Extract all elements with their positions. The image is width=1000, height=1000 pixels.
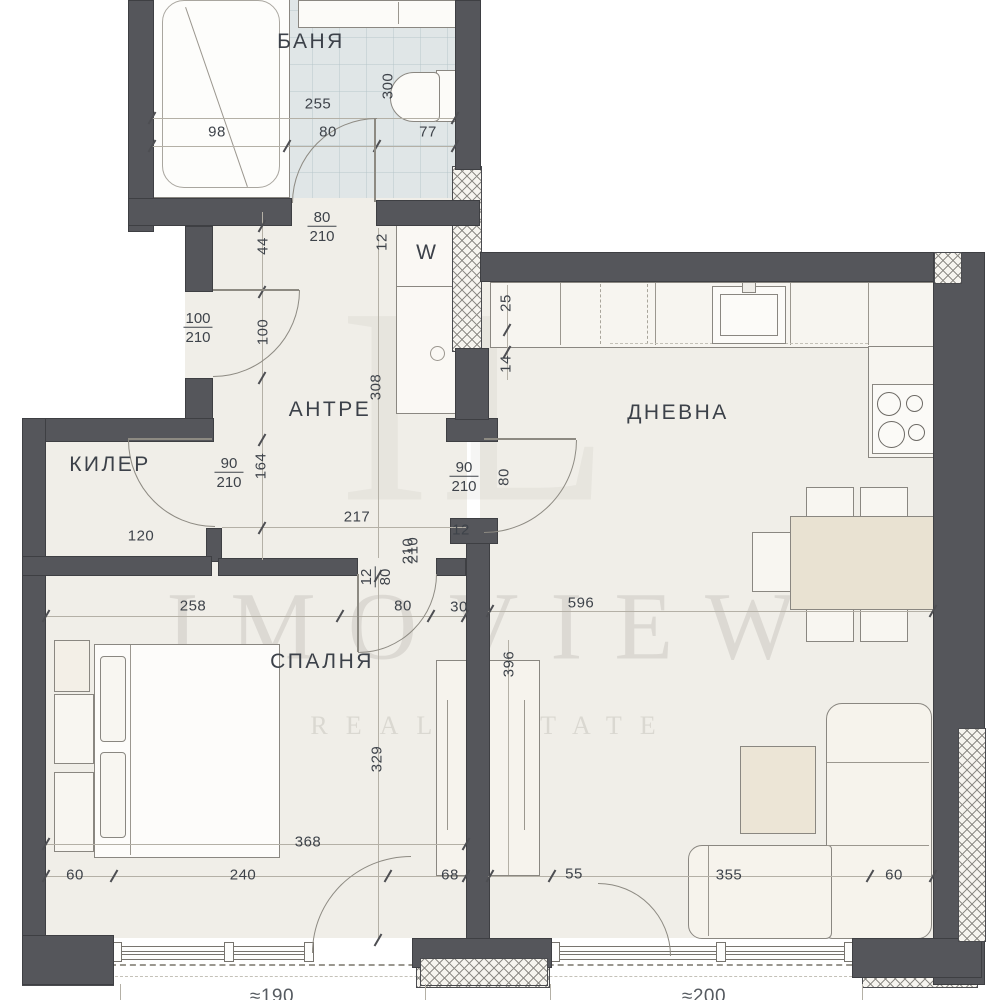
vanity-counter	[298, 0, 458, 28]
toilet-bowl	[390, 72, 440, 122]
dining-chair	[860, 607, 908, 642]
wardrobe-handle	[447, 700, 448, 830]
dim-label: 98	[208, 124, 226, 141]
dim-label: 12	[452, 522, 470, 539]
dim-label: 596	[568, 595, 595, 612]
floor-plan: IL IMOVIEW REAL ESTATE	[0, 0, 1000, 1000]
sofa-seat	[688, 845, 832, 939]
dim-label: 164	[253, 453, 270, 480]
counter-divider	[560, 283, 561, 345]
wall-segment	[480, 252, 935, 282]
dim-guide	[425, 984, 426, 1000]
dim-label: 25	[498, 294, 515, 312]
cooktop-burner	[877, 392, 901, 416]
sofa-cushion-line	[827, 845, 929, 846]
room-label-closet: КИЛЕР	[69, 453, 151, 477]
upper-cabinet-dash	[647, 284, 648, 344]
dim-label: 368	[295, 834, 322, 851]
right-wall-hatch	[958, 728, 986, 942]
wall-segment	[218, 558, 358, 576]
room-label-living: ДНЕВНА	[627, 401, 729, 425]
dim-label: 255	[305, 96, 332, 113]
dim-label: ≈200	[682, 986, 726, 1000]
entry-door-leaf	[213, 289, 299, 291]
nightstand	[54, 772, 94, 852]
dining-table	[790, 516, 934, 610]
dim-guide	[550, 984, 551, 1000]
nightstand	[54, 694, 94, 764]
dim-label: 44	[255, 237, 272, 255]
cooktop-burner	[906, 395, 923, 412]
dim-label: ≈190	[250, 986, 294, 1000]
pillow	[100, 656, 126, 742]
dim-label: 240	[230, 867, 257, 884]
door-width: 80	[375, 567, 394, 588]
dim-line	[152, 118, 455, 119]
wall-segment	[455, 348, 489, 420]
dim-line	[152, 146, 455, 147]
bed-head-line	[130, 645, 131, 855]
wall-segment	[466, 518, 490, 985]
sofa-armrest-line	[708, 846, 709, 936]
dim-label: 355	[716, 867, 743, 884]
dim-label: 12	[374, 233, 391, 251]
dim-label: 14	[498, 355, 515, 373]
cooktop-burner	[908, 424, 925, 441]
window-post	[716, 942, 726, 962]
counter-divider	[790, 283, 791, 345]
dim-label: 80	[319, 124, 337, 141]
living-wardrobe	[488, 660, 540, 876]
dim-label: 308	[368, 374, 385, 401]
door-size-label: 100 210	[183, 310, 212, 347]
washer-cabinet-bottom	[396, 286, 456, 414]
door-stub: 12	[358, 569, 375, 586]
wall-segment	[185, 226, 213, 292]
room-label-bedroom: СПАЛНЯ	[270, 650, 374, 674]
dim-label: 68	[441, 867, 459, 884]
door-width: 100	[185, 310, 210, 327]
dim-label: 60	[66, 867, 84, 884]
wall-segment	[455, 0, 481, 170]
dim-label: 300	[380, 73, 397, 100]
bedroom-window-sill	[114, 946, 314, 952]
door-width: 90	[456, 459, 473, 476]
pillow	[100, 752, 126, 838]
wall-segment	[436, 558, 466, 576]
bedroom-shelf	[54, 640, 90, 692]
door-size-label: 80 210	[307, 209, 336, 246]
room-label-bathroom: БАНЯ	[277, 30, 345, 54]
bathtub-inner	[162, 0, 280, 188]
wardrobe-handle	[524, 700, 525, 830]
door-size-label: 90 210	[214, 455, 243, 492]
dim-label: 80	[496, 468, 513, 486]
dim-label: 329	[369, 746, 386, 773]
upper-cabinet-dash	[600, 284, 601, 344]
dim-guide	[120, 984, 121, 1000]
counter-divider	[655, 283, 656, 345]
door-height: 210	[449, 476, 478, 495]
counter-divider	[868, 283, 869, 345]
dim-line	[262, 212, 263, 560]
dim-label: 258	[180, 598, 207, 615]
dim-label: 77	[419, 124, 437, 141]
dim-label: 55	[565, 866, 583, 883]
dim-label: 396	[501, 651, 518, 678]
door-width: 90	[221, 455, 238, 472]
dim-label: 217	[344, 509, 371, 526]
door-width: 80	[314, 209, 331, 226]
wall-segment	[22, 418, 46, 985]
dim-line	[222, 527, 466, 528]
room-label-hall: АНТРЕ	[289, 398, 372, 422]
bottom-hatch	[420, 958, 548, 986]
wall-segment	[376, 200, 480, 226]
washer-sink-circle	[430, 346, 445, 361]
dim-label: 120	[128, 528, 155, 545]
sofa-chaise	[826, 703, 932, 939]
wall-segment	[22, 935, 114, 985]
cooktop-burner	[878, 421, 905, 448]
dim-label: 60	[885, 867, 903, 884]
dim-line	[488, 611, 933, 612]
vanity-divider	[398, 2, 399, 24]
sofa-cushion-line	[827, 762, 929, 763]
door-size-label: 90 210	[449, 459, 478, 496]
washer-label: W	[416, 241, 436, 265]
door-size-label: 12 80	[358, 567, 395, 588]
wall-segment	[852, 938, 982, 978]
dining-chair	[752, 532, 794, 592]
kitchen-sink-basin	[720, 294, 778, 336]
living-door-leaf	[484, 438, 576, 440]
dim-label: 30	[450, 599, 468, 616]
kitchen-faucet	[742, 282, 756, 293]
bedroom-window-sill	[114, 954, 314, 960]
wall-segment	[128, 198, 292, 226]
door-height: 210	[183, 327, 212, 346]
dim-label: 100	[255, 319, 272, 346]
window-post	[224, 942, 234, 962]
dim-label: 80	[394, 598, 412, 615]
dim-line	[488, 876, 933, 877]
corner-hatch	[934, 252, 962, 284]
shaft-hatch	[452, 166, 482, 352]
bathroom-door-leaf	[374, 118, 376, 202]
coffee-table	[740, 746, 816, 834]
door-height: 210	[214, 472, 243, 491]
dim-label: 210	[400, 538, 417, 565]
dim-guide	[862, 984, 863, 1000]
wall-segment	[22, 556, 212, 576]
dining-chair	[806, 607, 854, 642]
dim-line	[46, 844, 466, 845]
door-height: 210	[307, 226, 336, 245]
closet-door-leaf	[128, 438, 212, 440]
